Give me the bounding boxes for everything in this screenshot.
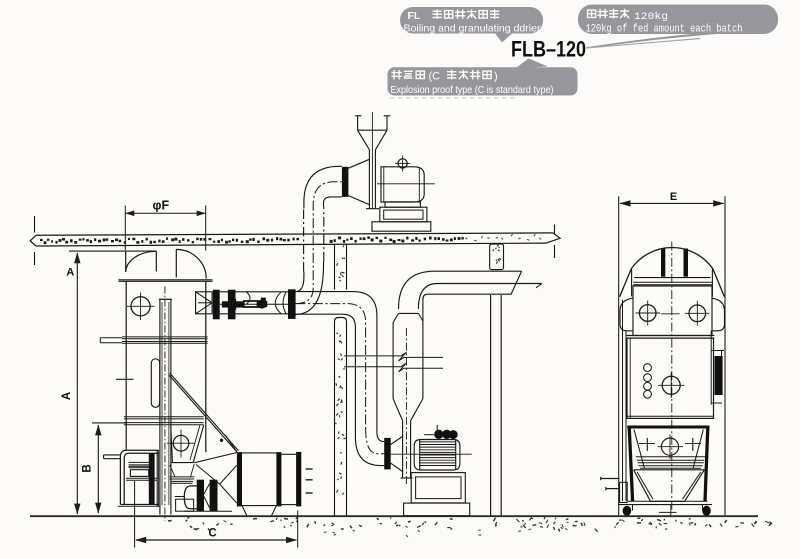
- svg-text:FLB–120: FLB–120: [511, 37, 586, 62]
- svg-text:(C: (C: [429, 70, 441, 82]
- svg-text:120kg: 120kg: [634, 11, 668, 23]
- svg-text:φF: φF: [153, 199, 170, 213]
- svg-text:A: A: [61, 392, 73, 400]
- svg-text:A: A: [66, 267, 74, 279]
- svg-text:): ): [494, 70, 498, 82]
- svg-text:120kg of fed amount each batch: 120kg of fed amount each batch: [586, 24, 743, 36]
- svg-text:C: C: [208, 528, 216, 540]
- svg-text:E: E: [670, 191, 677, 203]
- svg-text:Explosion proof type (C is sta: Explosion proof type (C is standard type…: [391, 85, 554, 96]
- svg-text:B: B: [81, 464, 93, 472]
- svg-text:FL: FL: [408, 10, 421, 22]
- svg-text:Boiling and granulating ddrier: Boiling and granulating ddrier: [404, 23, 542, 34]
